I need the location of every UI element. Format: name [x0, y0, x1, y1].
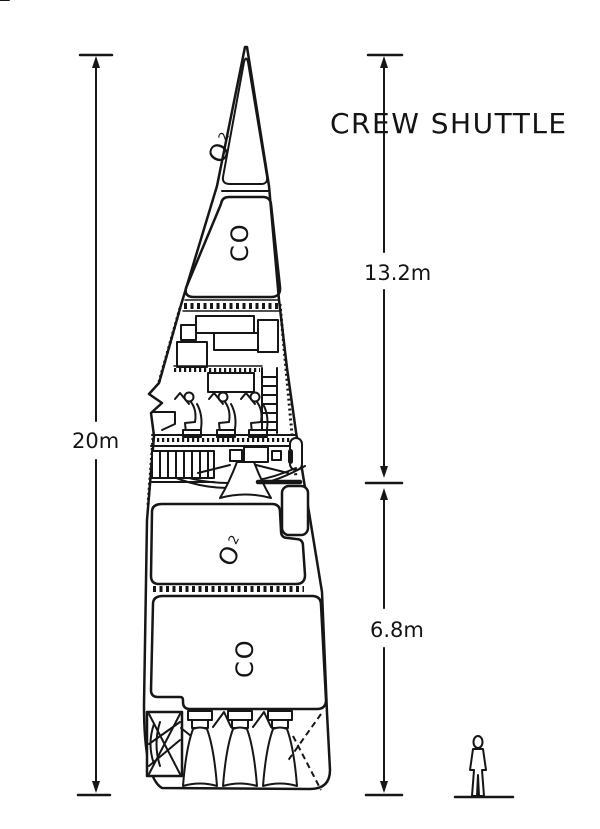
dimension-upper-label: 13.2m	[364, 261, 431, 285]
shuttle-drawing: O2 CO	[0, 0, 330, 790]
aft-fuel-label: CO	[231, 638, 259, 678]
crew-shuttle-schematic: 20m 13.2m 6.8m CREW SHUTTLE O2	[0, 0, 600, 829]
human-scale-figure	[455, 736, 513, 797]
dimension-total-label: 20m	[72, 429, 119, 453]
diagram-title: CREW SHUTTLE	[330, 107, 568, 140]
dimension-lower-label: 6.8m	[370, 618, 424, 642]
upper-fuel-label: CO	[226, 222, 254, 262]
dimension-total-height: 20m	[72, 55, 119, 795]
crew-shuttle-diagram: 20m 13.2m 6.8m CREW SHUTTLE O2	[0, 0, 600, 829]
aft-fuel-tank: CO	[151, 596, 326, 709]
airlock-hatch	[288, 438, 302, 470]
slatted-rack	[152, 451, 214, 482]
equipment-box	[208, 373, 254, 392]
dimension-lower-section: 6.8m	[366, 488, 424, 795]
ladder	[260, 368, 279, 434]
side-pod	[282, 486, 308, 535]
